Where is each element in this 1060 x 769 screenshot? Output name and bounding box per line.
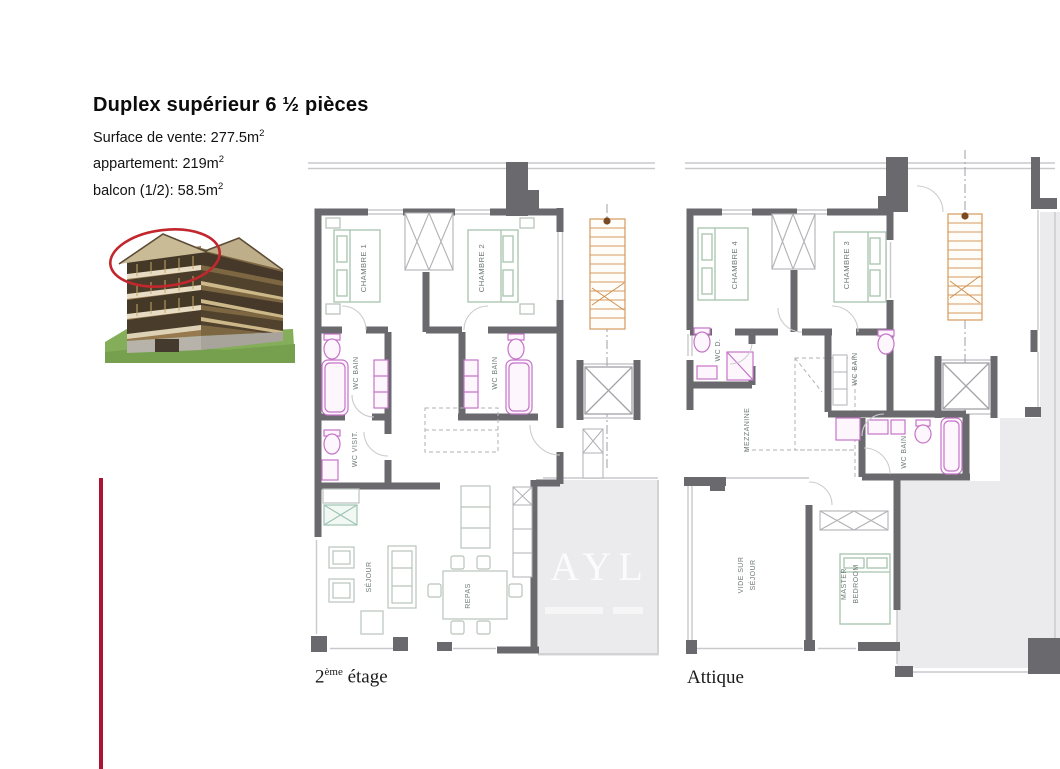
room-label-chambre4: CHAMBRE 4 bbox=[730, 241, 739, 289]
bath-shelf bbox=[868, 420, 888, 434]
room-label-master-1: MASTER bbox=[841, 568, 848, 600]
chair bbox=[477, 621, 490, 634]
bath-shelf bbox=[464, 360, 478, 408]
floor-caption-2eme: 2ème étage bbox=[315, 666, 388, 688]
lowbath-fixtures bbox=[868, 418, 962, 474]
counter bbox=[323, 489, 359, 503]
room-label-vide-2: SÉJOUR bbox=[748, 559, 757, 590]
watermark-fragment bbox=[545, 607, 603, 614]
floor-plan-attique: CHAMBRE 4 CHAMBRE 3 WC D. WC BAIN WC BAI… bbox=[684, 150, 1060, 677]
room-label-wcbain-low: WC BAIN bbox=[901, 435, 908, 468]
room-label-mezzanine: MEZZANINE bbox=[744, 408, 751, 453]
shower bbox=[836, 418, 860, 440]
watermark-fragment bbox=[613, 607, 643, 614]
nightstand bbox=[326, 304, 340, 314]
toilet-bowl bbox=[878, 334, 894, 354]
nightstand bbox=[520, 304, 534, 314]
staircase bbox=[948, 212, 982, 320]
pillow bbox=[870, 238, 880, 264]
toilet-bowl bbox=[508, 339, 524, 359]
floor-plan-2eme-etage: AYL bbox=[308, 162, 659, 656]
room-label-vide-1: VIDE SUR bbox=[738, 557, 745, 594]
terrace-corner-wall bbox=[1028, 638, 1060, 674]
toilet-bowl bbox=[694, 332, 710, 352]
coffee-table bbox=[361, 611, 383, 634]
room-label-wcbain2: WC BAIN bbox=[492, 356, 499, 389]
wardrobe bbox=[405, 213, 453, 270]
room-label-chambre3: CHAMBRE 3 bbox=[842, 241, 851, 289]
nightstand bbox=[520, 218, 534, 228]
terrace-area bbox=[1000, 418, 1060, 481]
washbasin bbox=[322, 460, 338, 480]
shelf-column bbox=[513, 487, 532, 577]
pillow bbox=[503, 236, 513, 262]
fireplace bbox=[324, 505, 357, 525]
wardrobe bbox=[772, 214, 815, 269]
room-label-repas: REPAS bbox=[465, 583, 472, 608]
brochure-page: Duplex supérieur 6 ½ pièces Surface de v… bbox=[0, 0, 1060, 769]
room-label-wcbain1: WC BAIN bbox=[353, 356, 360, 389]
chair bbox=[451, 556, 464, 569]
stair-start-dot bbox=[961, 212, 968, 219]
bed-chambre4 bbox=[698, 228, 748, 300]
room-label-chambre2: CHAMBRE 2 bbox=[477, 244, 486, 292]
washbasin bbox=[697, 366, 717, 379]
toilet-bowl bbox=[324, 434, 340, 454]
chair bbox=[477, 556, 490, 569]
chair bbox=[509, 584, 522, 597]
pillow bbox=[337, 270, 347, 296]
chair bbox=[428, 584, 441, 597]
pillow bbox=[702, 234, 712, 260]
stair-start-dot bbox=[603, 217, 610, 224]
pillow bbox=[337, 236, 347, 262]
room-label-master-2: BEDROOM bbox=[853, 564, 860, 603]
dining-set bbox=[428, 556, 522, 634]
floor-plans: AYL bbox=[0, 0, 1060, 769]
guest-wc-fixtures bbox=[322, 430, 340, 480]
washbasin bbox=[891, 420, 905, 434]
wcd-fixtures bbox=[694, 328, 753, 380]
entry-closet bbox=[583, 429, 603, 478]
terrace-strip bbox=[1040, 212, 1060, 418]
toilet-bowl bbox=[915, 425, 931, 443]
room-label-sejour: SÉJOUR bbox=[364, 561, 373, 592]
bed-chambre1 bbox=[326, 218, 380, 314]
bath-shelf-column bbox=[833, 355, 847, 405]
pillow bbox=[702, 268, 712, 294]
floor-caption-attique: Attique bbox=[687, 667, 744, 689]
elevator bbox=[943, 363, 989, 409]
room-label-wcvisit: WC VISIT. bbox=[352, 431, 359, 467]
bath-shelf bbox=[374, 360, 388, 408]
chair bbox=[451, 621, 464, 634]
dining-table bbox=[443, 571, 507, 619]
room-label-chambre1: CHAMBRE 1 bbox=[359, 244, 368, 292]
elevator bbox=[585, 367, 632, 414]
pillow bbox=[867, 558, 887, 568]
staircase bbox=[590, 217, 625, 329]
room-label-wcbain-mid: WC BAIN bbox=[852, 352, 859, 385]
toilet-bowl bbox=[324, 339, 340, 359]
nightstand bbox=[326, 218, 340, 228]
pillow bbox=[503, 270, 513, 296]
pillow bbox=[870, 270, 880, 296]
master-wardrobe bbox=[820, 511, 888, 530]
room-label-wcd: WC D. bbox=[715, 339, 722, 362]
tv-cabinet bbox=[461, 486, 490, 548]
watermark-text: AYL bbox=[550, 544, 650, 589]
